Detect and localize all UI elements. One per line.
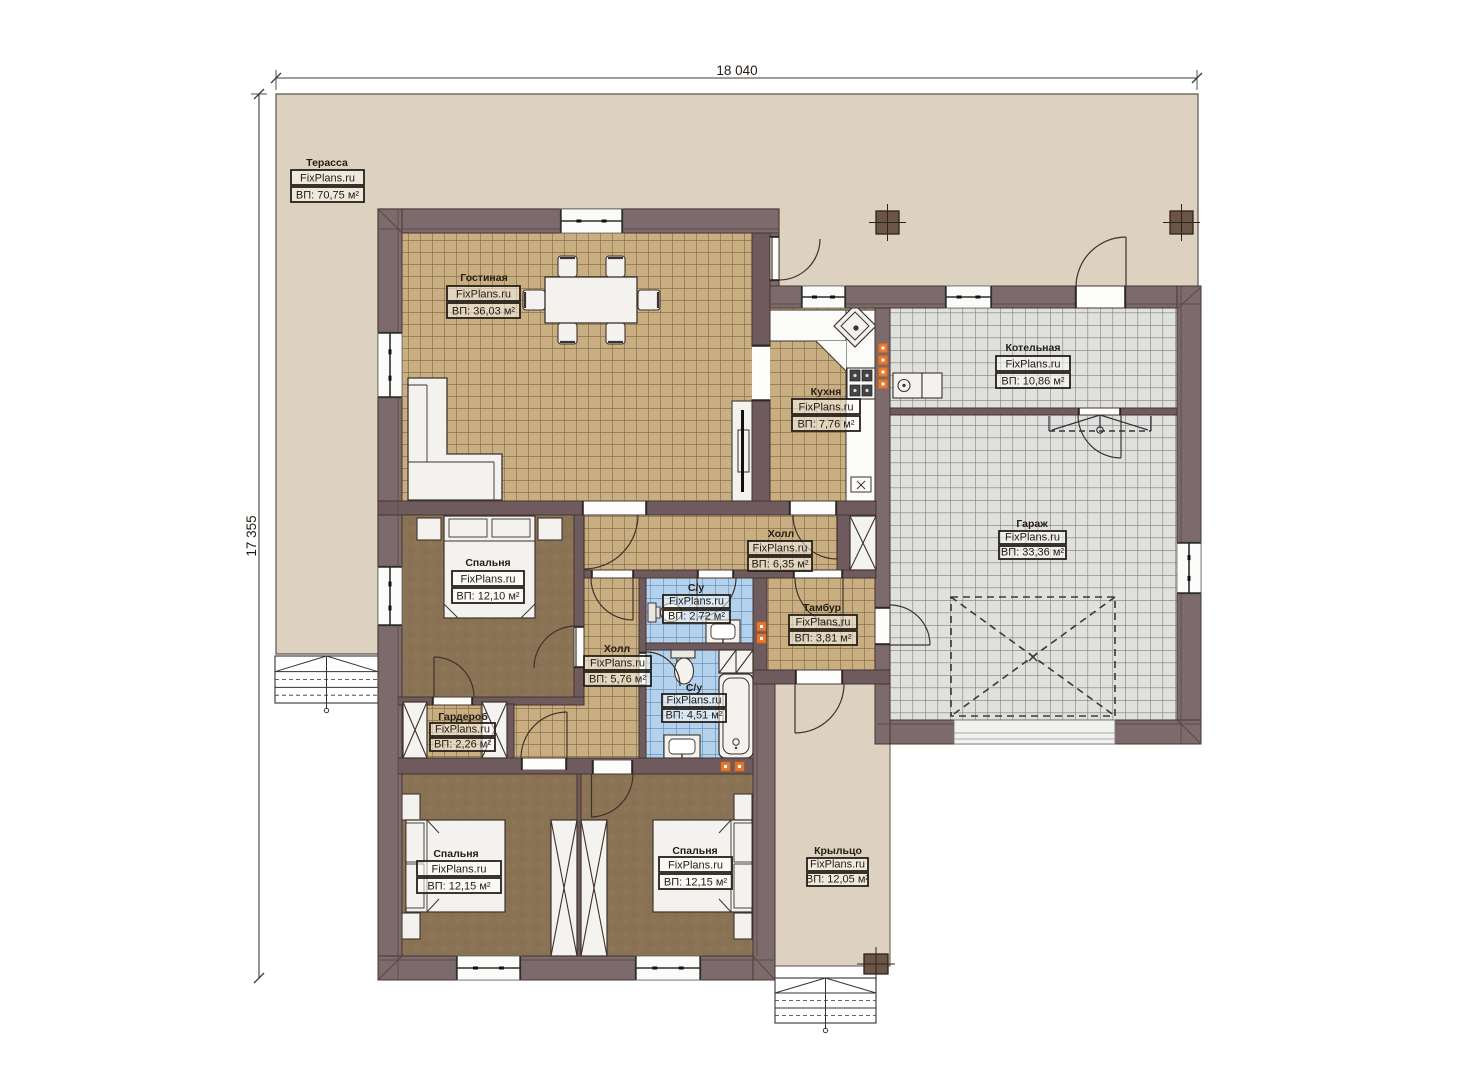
svg-text:ВП: 4,51 м²: ВП: 4,51 м² bbox=[665, 710, 722, 722]
svg-text:Гараж: Гараж bbox=[1016, 518, 1048, 530]
svg-text:ВП: 5,76 м²: ВП: 5,76 м² bbox=[589, 674, 646, 686]
svg-text:ВП: 33,36 м²: ВП: 33,36 м² bbox=[1001, 547, 1065, 559]
svg-text:FixPlans.ru: FixPlans.ru bbox=[798, 402, 853, 414]
svg-text:Гардероб: Гардероб bbox=[438, 711, 488, 723]
svg-text:FixPlans.ru: FixPlans.ru bbox=[1005, 359, 1060, 371]
svg-text:ВП: 36,03 м²: ВП: 36,03 м² bbox=[452, 306, 516, 318]
svg-text:FixPlans.ru: FixPlans.ru bbox=[1005, 532, 1060, 544]
svg-text:Спальня: Спальня bbox=[465, 557, 510, 569]
svg-text:FixPlans.ru: FixPlans.ru bbox=[795, 617, 850, 629]
svg-text:FixPlans.ru: FixPlans.ru bbox=[752, 543, 807, 555]
svg-text:FixPlans.ru: FixPlans.ru bbox=[456, 289, 511, 301]
svg-text:Холл: Холл bbox=[604, 643, 630, 655]
svg-text:ВП: 2,26 м²: ВП: 2,26 м² bbox=[434, 739, 491, 751]
svg-text:С/у: С/у bbox=[688, 582, 705, 594]
svg-text:FixPlans.ru: FixPlans.ru bbox=[460, 574, 515, 586]
svg-text:ВП: 10,86 м²: ВП: 10,86 м² bbox=[1001, 376, 1065, 388]
svg-text:Спальня: Спальня bbox=[433, 848, 478, 860]
svg-text:Крыльцо: Крыльцо bbox=[814, 845, 862, 857]
svg-text:FixPlans.ru: FixPlans.ru bbox=[666, 695, 721, 707]
svg-text:FixPlans.ru: FixPlans.ru bbox=[431, 864, 486, 876]
svg-text:18 040: 18 040 bbox=[716, 63, 757, 78]
svg-text:Спальня: Спальня bbox=[672, 845, 717, 857]
svg-text:ВП: 2,72 м²: ВП: 2,72 м² bbox=[668, 611, 725, 623]
svg-text:С/у: С/у bbox=[686, 682, 703, 694]
svg-text:ВП: 6,35 м²: ВП: 6,35 м² bbox=[751, 559, 808, 571]
svg-text:FixPlans.ru: FixPlans.ru bbox=[669, 596, 724, 608]
svg-text:ВП: 12,15 м²: ВП: 12,15 м² bbox=[427, 881, 491, 893]
svg-text:Тамбур: Тамбур bbox=[803, 602, 841, 614]
svg-text:FixPlans.ru: FixPlans.ru bbox=[435, 724, 490, 736]
svg-text:FixPlans.ru: FixPlans.ru bbox=[300, 173, 355, 185]
svg-text:ВП: 12,05 м²: ВП: 12,05 м² bbox=[806, 874, 870, 886]
svg-text:17 355: 17 355 bbox=[244, 515, 259, 556]
svg-text:ВП: 12,15 м²: ВП: 12,15 м² bbox=[664, 877, 728, 889]
svg-text:Гостиная: Гостиная bbox=[460, 272, 507, 284]
svg-text:ВП: 7,76 м²: ВП: 7,76 м² bbox=[797, 419, 854, 431]
svg-text:FixPlans.ru: FixPlans.ru bbox=[810, 859, 865, 871]
svg-text:ВП: 70,75 м²: ВП: 70,75 м² bbox=[296, 190, 360, 202]
svg-text:Терасса: Терасса bbox=[306, 157, 348, 169]
svg-text:FixPlans.ru: FixPlans.ru bbox=[668, 860, 723, 872]
svg-text:ВП: 12,10 м²: ВП: 12,10 м² bbox=[456, 591, 520, 603]
svg-text:FixPlans.ru: FixPlans.ru bbox=[590, 658, 645, 670]
svg-text:Котельная: Котельная bbox=[1006, 342, 1061, 354]
svg-text:ВП: 3,81 м²: ВП: 3,81 м² bbox=[794, 633, 851, 645]
svg-text:Холл: Холл bbox=[768, 528, 794, 540]
svg-text:Кухня: Кухня bbox=[811, 386, 842, 398]
